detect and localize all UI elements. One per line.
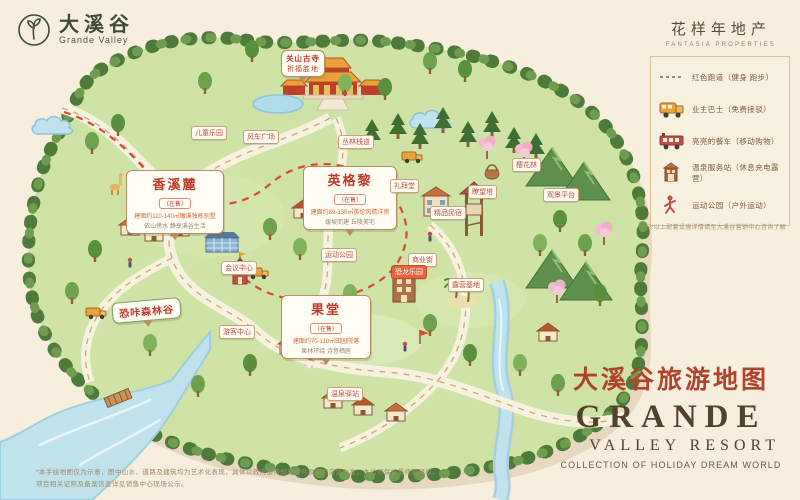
- estate-bubble-xiangxilu: 香溪麓 （在售） 建面约110-140㎡瞰溪独栋别墅 依山傍水 静享溪谷生活: [126, 170, 224, 234]
- map-title-cn: 大溪谷旅游地图: [554, 360, 788, 396]
- estate-line2: 依山傍水 静享溪谷生活: [131, 221, 219, 230]
- brand-logo: 大溪谷 Grande Valley: [16, 12, 134, 48]
- estate-bubble-yingeli: 英格黎 （在售） 建面约89-130㎡英伦风情洋房 缓坡而建 丘陵美宅: [303, 166, 397, 230]
- developer-name-cn: 花样年地产: [666, 18, 776, 39]
- map-flag: 运动公园: [321, 248, 357, 262]
- disclaimer-line1: *本手绘地图仅为示意，图中山水、道路及建筑均为艺术化表现，具体以政府最终规划文件…: [36, 466, 439, 476]
- legend-label: 亮亮的餐车（移动购物）: [692, 136, 779, 147]
- developer-name-en: FANTASIA PROPERTIES: [666, 42, 776, 48]
- legend-item: 亮亮的餐车（移动购物）: [658, 130, 782, 152]
- estate-bubble-guotang: 果堂 （在售） 建面约70-110㎡田园院落 果林环绕 诗意栖居: [281, 295, 371, 359]
- legend-item: 温泉服务站（休息充电露营）: [658, 162, 782, 184]
- estate-line2: 果林环绕 诗意栖居: [286, 346, 366, 355]
- estate-name: 香溪麓: [131, 174, 219, 193]
- legend-label: 运动公园（户外运动）: [692, 200, 771, 211]
- map-flag: 露营基地: [448, 278, 484, 292]
- sprout-logo-icon: [16, 12, 52, 48]
- disclaimer-line2: 项目相关证照及备案信息详见销售中心现场公示。: [36, 478, 188, 488]
- map-tagline-en: COLLECTION OF HOLIDAY DREAM WORLD: [554, 460, 788, 470]
- estate-status: （在售）: [159, 198, 191, 209]
- brand-name-cn: 大溪谷: [59, 14, 134, 36]
- estate-line1: 建面约89-130㎡英伦风情洋房: [308, 207, 392, 216]
- dashed-track-icon: [658, 66, 685, 88]
- temple-bubble: 关山古寺 祈福胜地: [281, 50, 325, 77]
- map-flag: 樱花林: [512, 158, 541, 172]
- legend-item: 红色跑道（健身 跑步）: [658, 66, 782, 88]
- map-flag: 儿童乐园: [191, 126, 227, 140]
- map-flag: 礼拜堂: [390, 179, 419, 193]
- temple-pond: [253, 95, 303, 113]
- poi-line1: 祈福胜地: [286, 64, 320, 74]
- estate-name: 果堂: [286, 299, 366, 318]
- legend-item: 运动公园（户外运动）: [658, 194, 782, 216]
- map-legend: 红色跑道（健身 跑步） 业主巴士（免费接驳） 亮亮的餐车（移动购物）: [650, 56, 790, 226]
- right-stream: [497, 282, 506, 500]
- dining-car-icon: [658, 130, 685, 152]
- estate-status: （在售）: [310, 323, 342, 334]
- map-flag: 精品民宿: [430, 206, 466, 220]
- estate-name: 英格黎: [308, 170, 392, 189]
- map-flag: 恐龙乐园: [391, 265, 427, 279]
- legend-label: 业主巴士（免费接驳）: [692, 104, 771, 115]
- legend-label: 温泉服务站（休息充电露营）: [692, 162, 782, 184]
- sports-park-icon: [658, 194, 685, 216]
- map-title-en: GRANDE: [554, 399, 788, 436]
- poi-name: 关山古寺: [286, 53, 320, 64]
- map-flag: 温泉驿站: [327, 387, 363, 401]
- map-flag: 会议中心: [221, 261, 257, 275]
- map-flag: 观景平台: [543, 188, 579, 202]
- estate-status: （在售）: [334, 194, 366, 205]
- map-flag: 丛林栈道: [338, 135, 374, 149]
- conference-center-icon: [204, 232, 240, 252]
- estate-line2: 缓坡而建 丘陵美宅: [308, 217, 392, 226]
- estate-line1: 建面约110-140㎡瞰溪独栋别墅: [131, 211, 219, 220]
- owner-bus-icon: [658, 98, 685, 120]
- estate-line1: 建面约70-110㎡田园院落: [286, 336, 366, 345]
- map-flag: 瞭望塔: [468, 185, 497, 199]
- developer-brand: 花样年地产 FANTASIA PROPERTIES: [666, 18, 776, 48]
- resort-map-poster: 大溪谷 Grande Valley 花样年地产 FANTASIA PROPERT…: [0, 0, 800, 500]
- map-flag: 风车广场: [243, 130, 279, 144]
- map-title-block: 大溪谷旅游地图 GRANDE VALLEY RESORT COLLECTION …: [554, 360, 788, 470]
- map-subtitle-en: VALLEY RESORT: [554, 437, 788, 455]
- brand-name-en: Grande Valley: [59, 36, 134, 46]
- service-station-icon: [658, 162, 685, 184]
- legend-item: 业主巴士（免费接驳）: [658, 98, 782, 120]
- legend-note: ※以上配套设施详情请至大溪谷营销中心咨询了解: [647, 222, 786, 231]
- map-flag: 游客中心: [219, 325, 255, 339]
- poi-name: 恐咔森林谷: [118, 301, 174, 321]
- legend-label: 红色跑道（健身 跑步）: [692, 72, 773, 83]
